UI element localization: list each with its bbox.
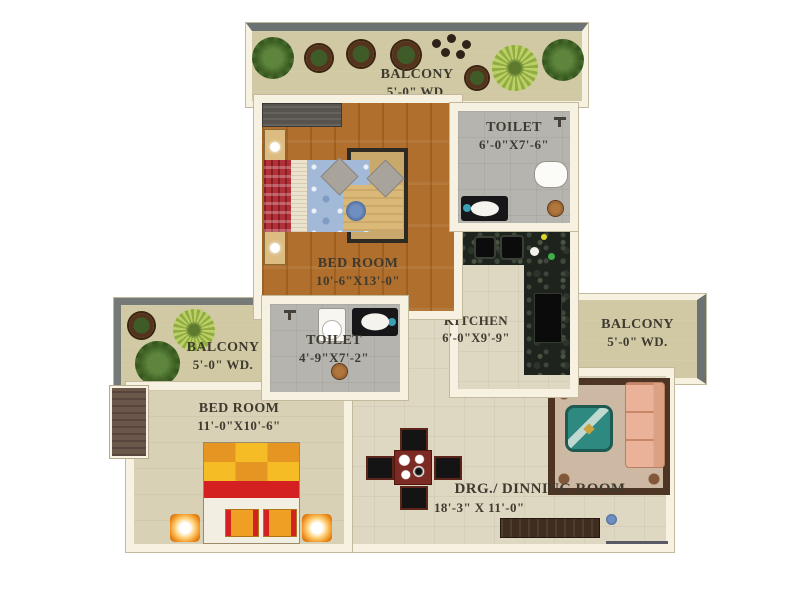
room-name: BALCONY <box>252 66 582 84</box>
room-size: 18'-3" X 11'-0" <box>434 500 646 517</box>
dining-chair <box>400 486 428 510</box>
room-bedroom-top: BED ROOM 10'-6"X13'-0" <box>254 95 462 319</box>
jar-icon <box>530 247 539 256</box>
dining-chair <box>400 428 428 452</box>
toilet-top-label: TOILET 6'-0"X7'-6" <box>458 119 570 154</box>
bed-pillow <box>225 509 259 537</box>
room-toilet-top: TOILET 6'-0"X7'-6" <box>450 103 578 231</box>
room-size: 4'-9"X7'-2" <box>274 350 394 367</box>
dining-label: DRG./ DINNING ROOM 18'-3" X 11'-0" <box>434 480 646 516</box>
kitchen-sink <box>534 293 562 343</box>
wardrobe <box>262 103 342 127</box>
wash-basin <box>461 196 508 221</box>
room-size: 5'-0" WD. <box>578 334 697 351</box>
shower-icon <box>284 310 296 320</box>
room-size: 6'-0"X9'-9" <box>430 330 522 346</box>
room-name: TOILET <box>274 332 394 350</box>
bed-band <box>204 481 299 498</box>
room-name: BED ROOM <box>262 255 454 273</box>
tap-icon <box>463 204 471 212</box>
floor-plan: BALCONY 5'-0" WD. BED ROOM 10'-6"X13'-0"… <box>0 0 800 600</box>
bed-pillows <box>264 160 291 232</box>
room-kitchen: KITCHEN 6'-0"X9'-9" <box>450 223 578 397</box>
jar-icon <box>541 234 547 240</box>
bedroom-bottom-label: BED ROOM 11'-0"X10'-6" <box>134 400 344 435</box>
potted-plant-icon <box>348 41 374 67</box>
dining-chair <box>434 456 462 480</box>
room-name: BED ROOM <box>134 400 344 418</box>
bed-mattress <box>291 160 307 232</box>
tv-unit <box>500 518 600 538</box>
coffee-table <box>565 405 613 452</box>
pebbles-icon <box>432 39 441 48</box>
bed-quilt <box>204 443 299 481</box>
stove-burner-icon <box>500 235 524 260</box>
room-bedroom-bottom: BED ROOM 11'-0"X10'-6" <box>126 382 352 552</box>
potted-plant-icon <box>129 313 154 338</box>
room-size: 10'-6"X13'-0" <box>262 273 454 290</box>
room-size: 11'-0"X10'-6" <box>134 418 344 435</box>
stove-burner-icon <box>474 236 496 259</box>
dining-table <box>394 450 432 485</box>
double-bed <box>203 442 300 544</box>
jar-icon <box>548 253 555 260</box>
wardrobe <box>110 386 148 458</box>
dining-chair <box>366 456 394 480</box>
kitchen-counter <box>458 231 530 265</box>
bed-pillow <box>263 509 297 537</box>
entry-door-line <box>606 541 668 544</box>
tap-icon <box>388 318 396 326</box>
bedroom-top-label: BED ROOM 10'-6"X13'-0" <box>262 255 454 290</box>
potted-plant-icon <box>392 41 420 69</box>
room-name: DRG./ DINNING ROOM <box>434 480 646 500</box>
bedside-lamp-icon <box>302 514 332 542</box>
toilet-mid-label: TOILET 4'-9"X7'-2" <box>274 332 394 367</box>
bedside-lamp-icon <box>170 514 200 542</box>
kitchen-counter-side <box>524 231 570 375</box>
decor-bowl <box>346 201 366 221</box>
sofa <box>625 382 665 468</box>
room-name: BALCONY <box>578 316 697 334</box>
room-name: TOILET <box>458 119 570 137</box>
room-toilet-mid: TOILET 4'-9"X7'-2" <box>262 296 408 400</box>
floor-drain-icon <box>548 201 563 216</box>
balcony-right-label: BALCONY 5'-0" WD. <box>578 316 697 351</box>
bathtub <box>534 161 568 188</box>
room-size: 6'-0"X7'-6" <box>458 137 570 154</box>
